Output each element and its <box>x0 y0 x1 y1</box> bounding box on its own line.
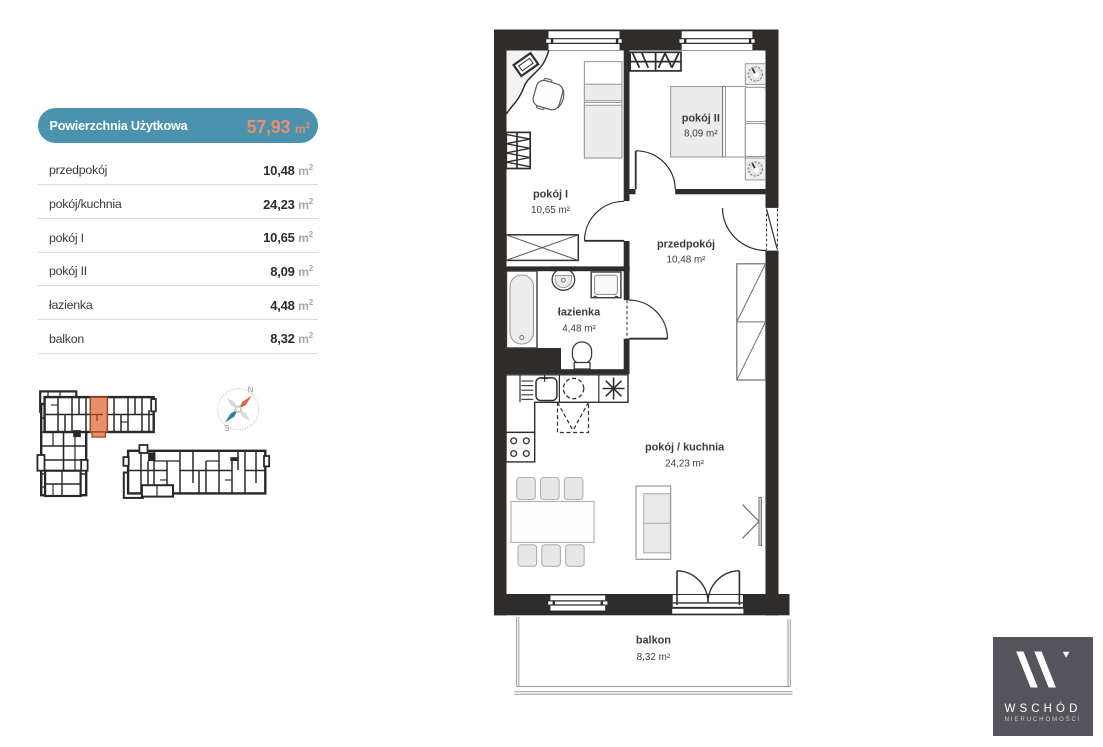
svg-text:pokój / kuchnia: pokój / kuchnia <box>645 442 725 454</box>
svg-text:S: S <box>224 424 230 433</box>
svg-text:10,65 m²: 10,65 m² <box>531 205 571 216</box>
svg-text:pokój II: pokój II <box>682 113 720 125</box>
svg-text:WSCHÓD: WSCHÓD <box>1005 702 1082 715</box>
svg-text:łazienka: łazienka <box>558 307 601 319</box>
svg-text:NIERUCHOMOŚCI: NIERUCHOMOŚCI <box>1005 715 1082 723</box>
svg-text:8,32 m²: 8,32 m² <box>637 652 671 663</box>
svg-text:8,09 m²: 8,09 m² <box>684 129 718 140</box>
svg-text:pokój I: pokój I <box>533 189 568 201</box>
svg-text:4,48 m²: 4,48 m² <box>562 324 596 335</box>
svg-text:przedpokój: przedpokój <box>657 239 715 251</box>
svg-text:N: N <box>248 385 254 394</box>
svg-text:10,48 m²: 10,48 m² <box>667 255 707 266</box>
svg-text:24,23 m²: 24,23 m² <box>665 459 705 470</box>
svg-text:balkon: balkon <box>636 635 671 647</box>
